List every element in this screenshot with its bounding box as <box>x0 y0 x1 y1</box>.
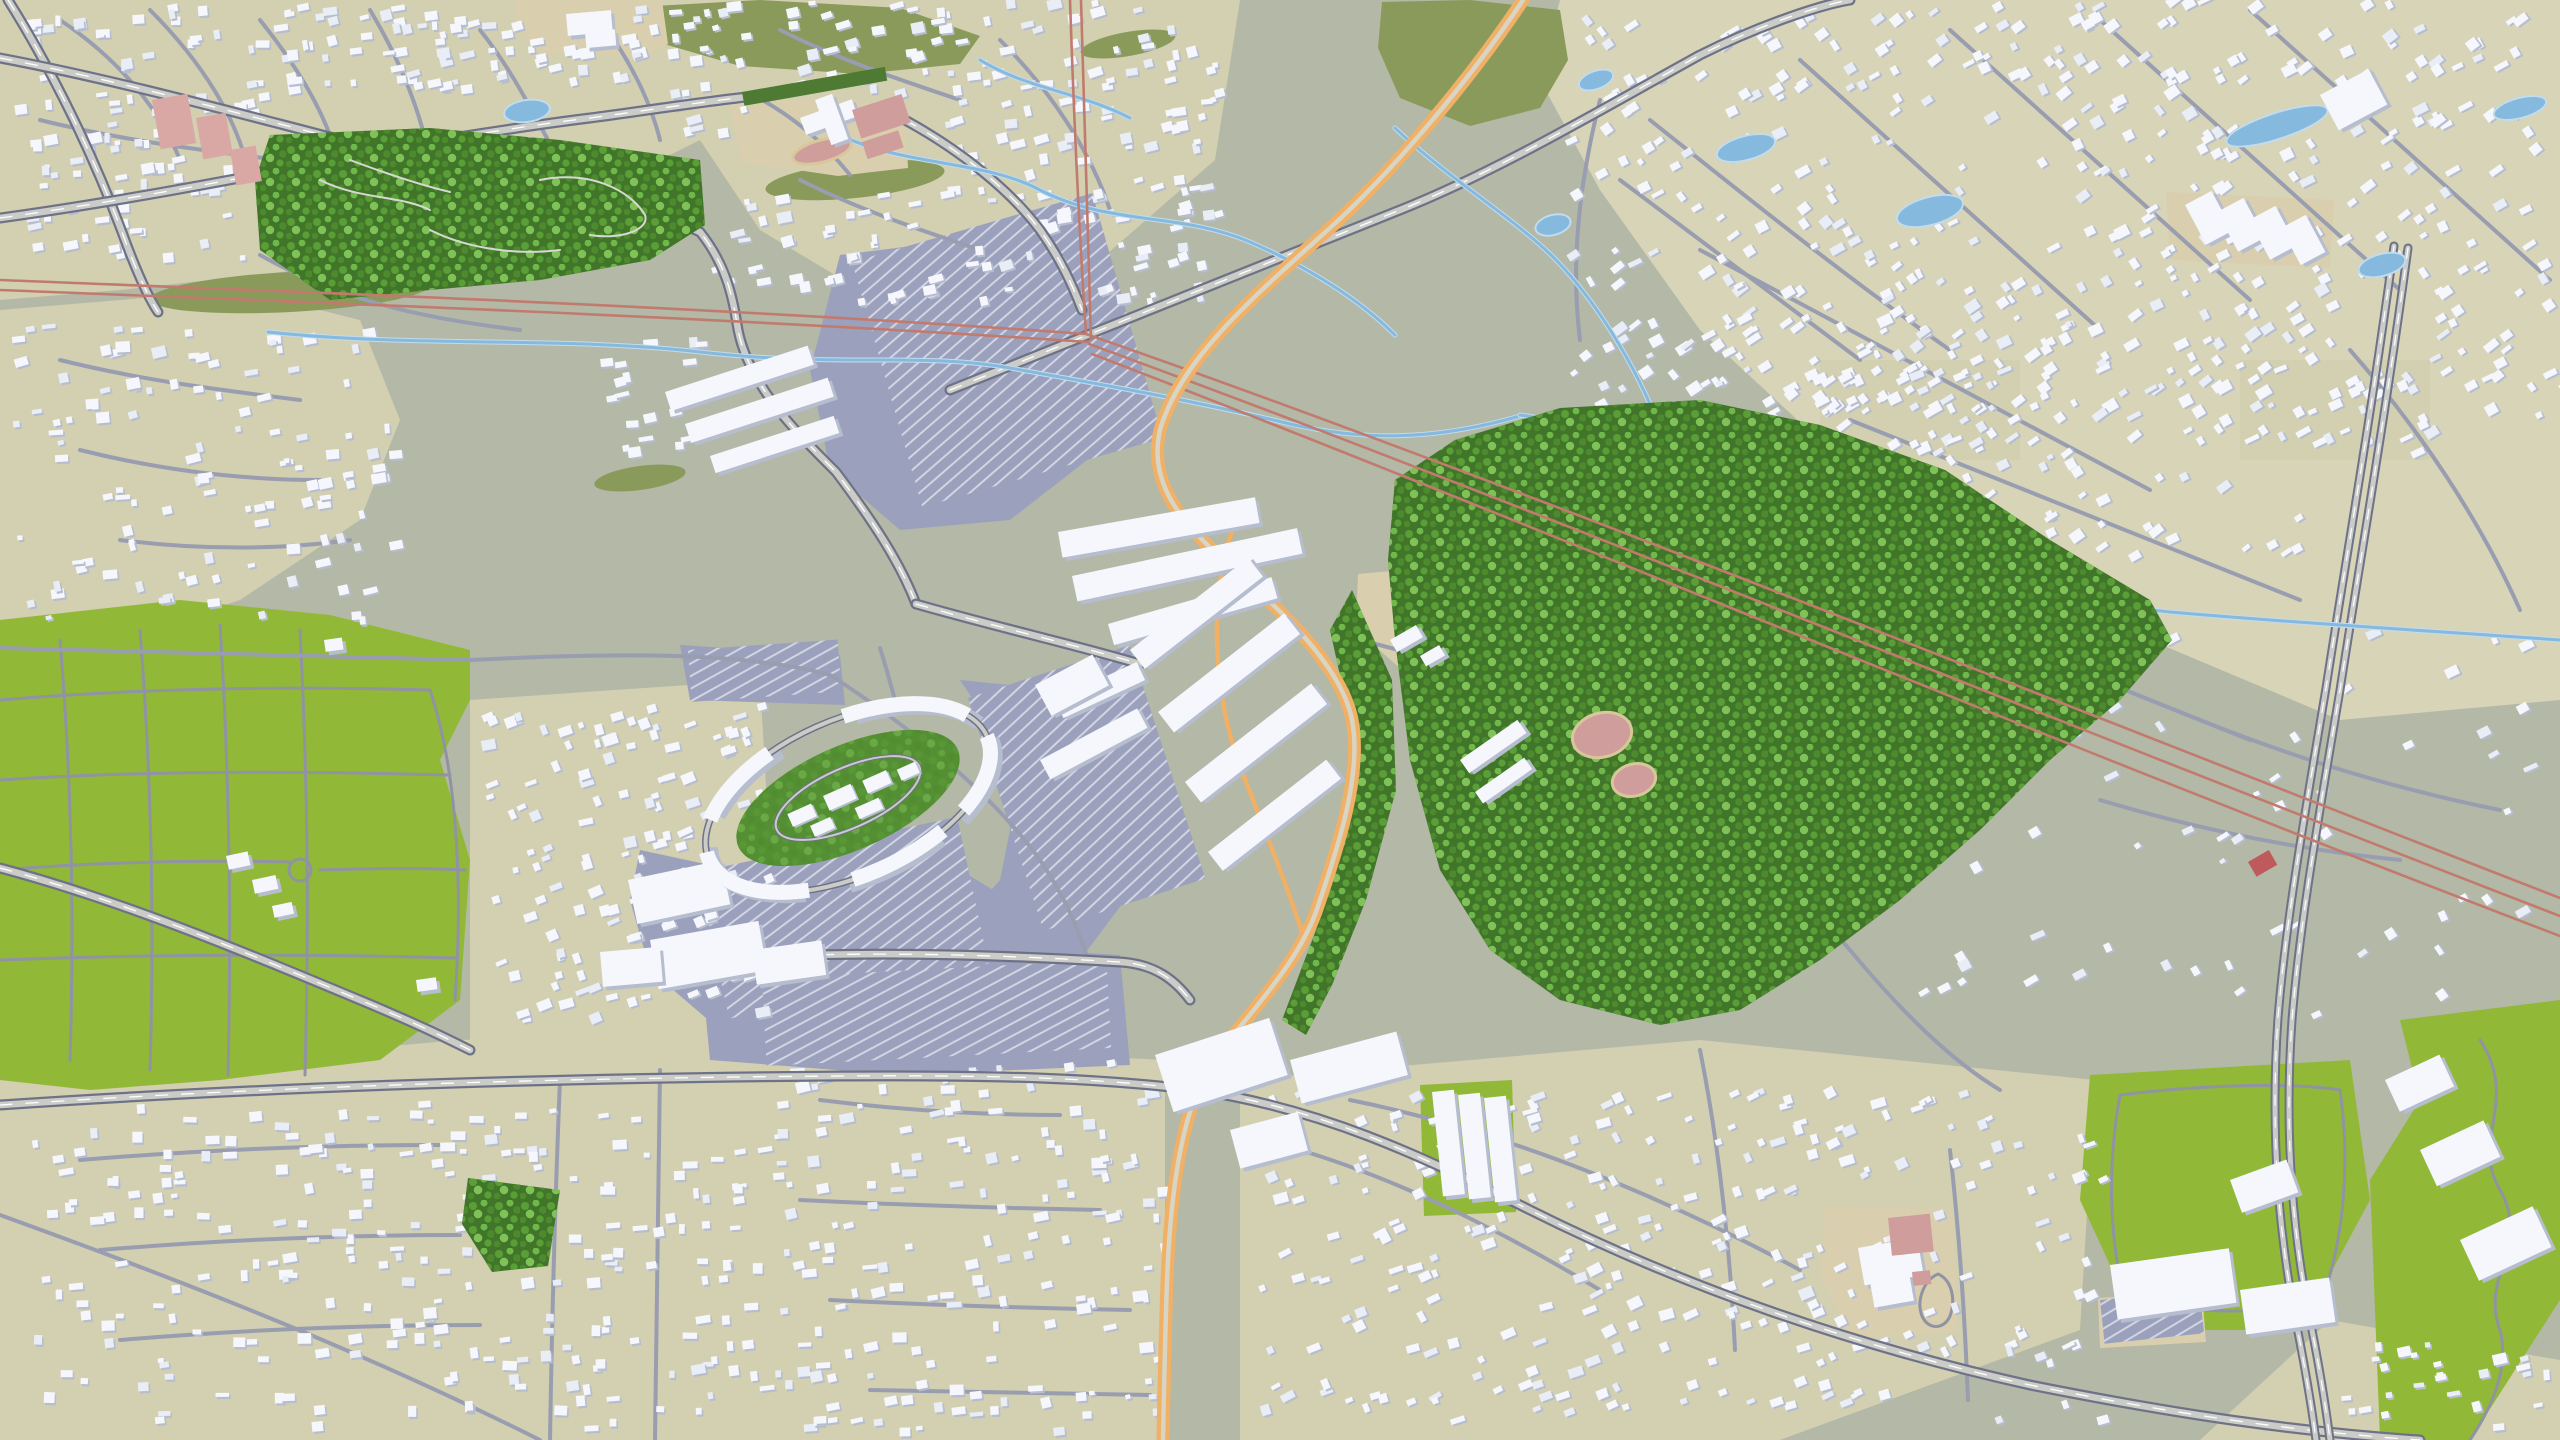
building <box>387 1340 398 1348</box>
building <box>282 1276 289 1283</box>
building <box>488 48 495 53</box>
building <box>587 1277 601 1288</box>
building <box>395 1253 402 1261</box>
building <box>97 33 104 38</box>
building <box>367 1116 379 1120</box>
building <box>934 1402 944 1413</box>
building <box>1145 1378 1152 1385</box>
building <box>693 16 700 22</box>
building <box>281 1393 295 1401</box>
building <box>612 1140 627 1150</box>
pink-structure <box>1888 1214 1934 1256</box>
building <box>997 1204 1006 1214</box>
building <box>193 385 204 393</box>
building <box>100 344 112 356</box>
building <box>846 211 855 219</box>
building <box>164 1209 173 1215</box>
building <box>702 1221 710 1229</box>
building <box>233 1337 245 1347</box>
building <box>2385 1392 2392 1398</box>
building <box>806 48 819 61</box>
building <box>702 1194 710 1203</box>
building <box>857 298 865 306</box>
building <box>349 1210 362 1220</box>
building <box>249 1111 262 1122</box>
building <box>603 1316 611 1326</box>
building <box>937 7 946 17</box>
building <box>517 1357 528 1363</box>
building <box>192 1329 201 1334</box>
building <box>958 1136 966 1146</box>
building <box>952 85 962 96</box>
building <box>2375 1342 2382 1351</box>
building <box>80 1378 88 1384</box>
building <box>315 13 324 21</box>
building <box>377 1230 385 1235</box>
building <box>950 1100 961 1112</box>
building <box>569 1234 581 1242</box>
building <box>69 1283 84 1291</box>
building <box>414 1333 424 1344</box>
building <box>722 1315 730 1325</box>
building <box>1057 1179 1068 1188</box>
building <box>360 1169 373 1179</box>
building <box>742 1340 754 1350</box>
building <box>970 1391 982 1400</box>
building <box>469 1347 478 1359</box>
building <box>392 1329 406 1338</box>
building <box>1153 1213 1159 1222</box>
building <box>926 1360 936 1369</box>
building <box>185 329 193 337</box>
building <box>138 1382 149 1391</box>
building <box>325 1132 335 1143</box>
building <box>541 1350 552 1361</box>
building <box>384 423 390 433</box>
building <box>90 1128 98 1139</box>
building <box>728 1365 739 1376</box>
building <box>39 183 47 189</box>
building <box>515 1384 526 1390</box>
building <box>2348 1408 2355 1415</box>
building <box>753 1263 763 1274</box>
building <box>201 1151 210 1162</box>
building <box>326 449 340 460</box>
building <box>711 1157 724 1162</box>
building <box>730 1225 741 1230</box>
building <box>631 1116 641 1122</box>
building <box>55 15 60 26</box>
building <box>346 1247 354 1254</box>
building <box>878 1084 887 1095</box>
building <box>235 426 242 433</box>
building <box>996 1065 1002 1072</box>
building <box>163 252 174 263</box>
building <box>644 1153 650 1158</box>
building <box>153 1303 164 1308</box>
building <box>825 225 836 234</box>
building <box>719 1275 729 1283</box>
building <box>104 133 109 143</box>
building <box>816 1362 830 1369</box>
pink-structure <box>1912 1270 1931 1286</box>
building <box>824 1242 835 1253</box>
building <box>1120 132 1133 144</box>
building <box>529 1152 538 1162</box>
building <box>285 1133 298 1140</box>
building <box>127 94 134 104</box>
building <box>543 1328 553 1334</box>
building <box>2341 1395 2351 1400</box>
building <box>889 1283 903 1292</box>
building <box>797 1366 810 1377</box>
building <box>596 1359 606 1369</box>
building <box>978 1089 989 1098</box>
building <box>891 1162 900 1173</box>
building <box>134 1207 143 1218</box>
building <box>990 1406 999 1415</box>
building <box>815 1416 827 1424</box>
building <box>483 1356 494 1361</box>
building <box>132 1132 142 1143</box>
building <box>967 71 981 81</box>
building <box>17 535 23 540</box>
building <box>80 1311 91 1321</box>
building <box>165 1374 174 1380</box>
building <box>923 1096 933 1106</box>
building <box>911 1346 921 1355</box>
building <box>433 1324 448 1335</box>
building <box>107 1178 118 1186</box>
building <box>258 1356 269 1362</box>
building <box>988 198 996 203</box>
building <box>225 1136 236 1147</box>
building <box>950 1384 964 1395</box>
building <box>1004 119 1017 129</box>
building <box>349 1350 361 1358</box>
building <box>784 1249 790 1256</box>
building <box>1041 1127 1049 1137</box>
building <box>683 1333 698 1339</box>
building <box>674 1171 685 1180</box>
building <box>45 99 52 110</box>
building <box>682 90 690 97</box>
building <box>727 1341 734 1351</box>
building <box>173 173 183 183</box>
building <box>411 1222 420 1228</box>
building <box>822 1257 833 1263</box>
building <box>818 1115 832 1122</box>
building <box>494 1126 500 1133</box>
building <box>432 21 438 30</box>
building <box>610 1419 617 1427</box>
building <box>1116 293 1131 305</box>
building <box>1174 175 1185 185</box>
road <box>320 869 465 871</box>
building <box>873 1418 883 1426</box>
building <box>44 1392 55 1403</box>
building <box>1055 1145 1063 1155</box>
building <box>546 1314 554 1322</box>
building <box>42 165 50 175</box>
building <box>451 1131 466 1140</box>
building <box>734 1184 743 1193</box>
building <box>137 1104 145 1114</box>
building <box>241 1270 248 1281</box>
building <box>146 387 153 395</box>
building <box>33 18 42 27</box>
building <box>502 1361 517 1371</box>
building <box>646 1261 657 1269</box>
building <box>1167 25 1175 35</box>
building <box>307 1237 319 1242</box>
building <box>1028 1385 1043 1392</box>
building <box>726 1 742 12</box>
building <box>295 465 303 471</box>
building <box>2410 1352 2417 1358</box>
building <box>877 1262 888 1273</box>
building <box>161 1178 171 1188</box>
building <box>750 1371 758 1381</box>
building <box>667 48 679 59</box>
building <box>438 1268 451 1273</box>
building <box>1143 1198 1155 1207</box>
building <box>218 1225 231 1234</box>
building <box>348 1255 355 1262</box>
building <box>338 1109 348 1120</box>
building <box>364 1303 372 1311</box>
building <box>389 450 403 459</box>
building <box>69 1199 77 1205</box>
building <box>696 341 708 347</box>
building <box>423 1307 437 1319</box>
building <box>362 1180 372 1189</box>
building <box>1139 1342 1154 1354</box>
building <box>92 403 99 410</box>
building <box>440 1142 455 1151</box>
building <box>284 458 290 464</box>
building <box>578 64 588 75</box>
building <box>615 1267 623 1272</box>
building <box>584 1425 598 1431</box>
building <box>892 1332 906 1342</box>
building <box>428 1119 434 1123</box>
building <box>332 1229 346 1237</box>
building <box>424 11 438 22</box>
building <box>322 54 329 62</box>
building <box>490 60 498 71</box>
building <box>443 50 450 58</box>
building <box>693 1188 699 1199</box>
building <box>1077 157 1091 165</box>
building <box>96 411 110 423</box>
building <box>168 163 175 170</box>
building <box>66 416 73 423</box>
building <box>656 1406 664 1412</box>
building <box>902 1169 916 1177</box>
building <box>1004 287 1012 292</box>
building <box>988 1108 1002 1115</box>
building <box>808 1 816 6</box>
building <box>397 75 407 84</box>
building <box>669 1371 674 1378</box>
building <box>469 1116 483 1123</box>
building <box>298 1220 307 1227</box>
building <box>50 172 58 179</box>
building <box>697 1258 708 1264</box>
building <box>109 100 120 106</box>
building <box>47 1210 58 1218</box>
building <box>975 246 984 256</box>
building <box>34 1335 42 1345</box>
building <box>940 1292 954 1299</box>
building <box>1069 1105 1081 1116</box>
building <box>41 1276 50 1283</box>
building <box>1082 1411 1092 1419</box>
building <box>287 49 299 61</box>
landmark-building <box>324 637 343 651</box>
building <box>1176 120 1188 132</box>
building <box>14 104 27 115</box>
building <box>591 1325 600 1336</box>
building <box>576 1395 586 1406</box>
building <box>104 1338 114 1349</box>
building <box>600 358 613 367</box>
building <box>55 454 68 462</box>
building <box>56 1290 62 1300</box>
building <box>115 341 130 353</box>
building <box>1039 153 1049 165</box>
building <box>683 1161 698 1168</box>
building <box>275 1122 290 1130</box>
building <box>780 1307 789 1314</box>
building <box>773 1172 784 1180</box>
building <box>601 1254 613 1261</box>
building <box>408 1406 416 1417</box>
building <box>350 79 356 86</box>
building <box>378 1261 388 1269</box>
building <box>653 1226 665 1237</box>
building <box>539 1148 547 1156</box>
building <box>431 1158 443 1168</box>
building <box>462 1247 472 1256</box>
building <box>2543 1370 2550 1381</box>
building <box>115 495 130 500</box>
building <box>418 1101 431 1108</box>
building <box>2493 1423 2505 1431</box>
building <box>420 1256 428 1263</box>
building <box>152 1192 163 1203</box>
city-map-stage <box>0 0 2560 1440</box>
building <box>1099 1129 1106 1139</box>
building <box>131 499 137 506</box>
building <box>566 1380 580 1392</box>
building <box>669 9 682 15</box>
city-map-render <box>0 0 2560 1440</box>
building <box>741 32 752 40</box>
building <box>802 1268 817 1277</box>
building <box>1076 1303 1091 1315</box>
building <box>253 1259 259 1269</box>
landmark-building <box>585 29 616 48</box>
building <box>870 84 878 94</box>
building <box>554 1405 567 1415</box>
building <box>867 1181 876 1189</box>
building <box>114 140 120 145</box>
building <box>361 32 373 40</box>
building <box>82 234 89 242</box>
building <box>286 543 300 554</box>
building <box>73 170 81 177</box>
building <box>74 1147 86 1157</box>
building <box>461 84 473 94</box>
building <box>700 82 710 92</box>
building <box>168 1313 176 1323</box>
building <box>867 1202 877 1209</box>
building <box>450 23 462 34</box>
building <box>717 128 729 139</box>
building <box>1149 1394 1157 1399</box>
building <box>314 1405 326 1415</box>
landmark-building <box>600 947 663 987</box>
building <box>197 1213 210 1220</box>
building <box>777 1129 788 1139</box>
building <box>345 433 352 440</box>
building <box>570 1176 578 1181</box>
building <box>562 1344 571 1350</box>
building <box>325 1298 335 1309</box>
building <box>76 1300 88 1307</box>
building <box>116 1314 124 1319</box>
building <box>1076 1392 1087 1402</box>
building <box>744 1303 758 1311</box>
building <box>402 1277 415 1286</box>
building <box>627 446 641 458</box>
building <box>1053 1427 1065 1436</box>
building <box>155 1416 165 1424</box>
building <box>553 1279 562 1286</box>
building <box>1067 1192 1075 1199</box>
building <box>946 1302 961 1308</box>
building <box>482 22 496 29</box>
building <box>1089 1391 1095 1396</box>
building <box>1064 1062 1075 1072</box>
building <box>871 234 877 244</box>
building <box>359 616 365 625</box>
building <box>1046 1140 1054 1148</box>
building <box>276 1164 288 1174</box>
building <box>1042 1194 1048 1202</box>
building <box>484 1134 497 1145</box>
building <box>256 40 270 47</box>
building <box>183 1117 197 1123</box>
building <box>450 1371 458 1381</box>
building <box>798 1342 811 1347</box>
building <box>158 1411 170 1416</box>
building <box>206 472 213 479</box>
building <box>134 139 142 147</box>
building <box>465 1401 473 1411</box>
building <box>513 1148 524 1153</box>
building <box>600 1186 615 1194</box>
building <box>788 20 798 29</box>
building <box>390 1246 404 1251</box>
building <box>410 1110 423 1118</box>
building <box>2425 1342 2431 1348</box>
building <box>911 1153 921 1161</box>
building <box>867 1373 874 1379</box>
building <box>390 1318 403 1329</box>
